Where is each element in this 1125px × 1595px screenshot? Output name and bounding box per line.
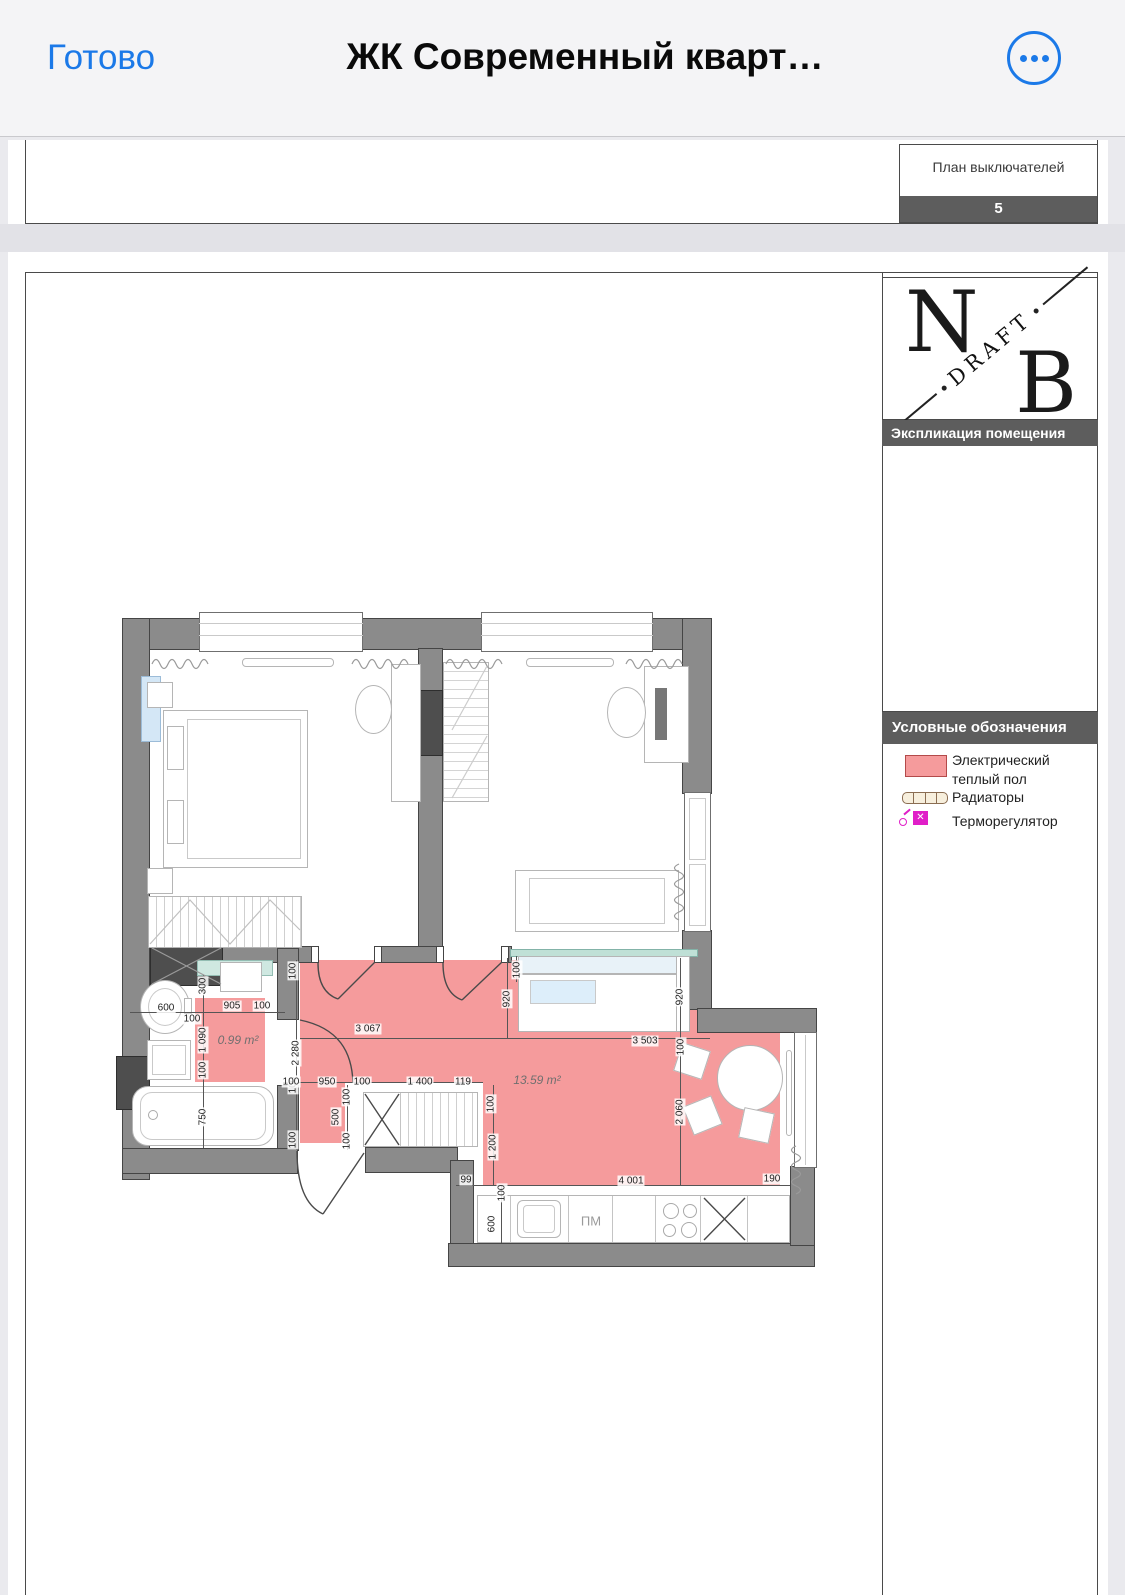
nightstand (147, 868, 173, 894)
wall-bottom-bathroom (122, 1148, 298, 1174)
dimension-label: 100 (353, 1077, 372, 1088)
logo-letter-b: B (1015, 341, 1077, 425)
dimension-label: 905 (223, 1001, 242, 1012)
dimension-label: 950 (318, 1077, 337, 1088)
explication-table-empty (882, 446, 1098, 712)
dimension-label: 1 090 (198, 1026, 209, 1053)
explication-header: Экспликация помещения (882, 420, 1098, 446)
curtain-rod (526, 658, 614, 667)
dimension-label: 100 (497, 1184, 508, 1203)
dimension-label: 100 (676, 1038, 687, 1057)
more-options-button[interactable] (1007, 31, 1061, 85)
dimension-label: 1 200 (488, 1133, 499, 1160)
chair (607, 687, 646, 738)
window-bedroom1 (199, 612, 363, 652)
dimension-label: 2 060 (675, 1098, 686, 1125)
dimension-label: 920 (675, 988, 686, 1007)
dimension-label: 300 (198, 977, 209, 996)
dimension-label: 920 (502, 990, 513, 1009)
dimension-label: 1 400 (406, 1077, 433, 1088)
logo-box: N B DRAFT (882, 277, 1098, 420)
stamp-page-number: 5 (900, 196, 1097, 222)
radiator-icon (902, 792, 948, 804)
dimension-label: 600 (487, 1215, 498, 1234)
thermoregulator-box-icon (913, 811, 928, 825)
area-label-kitchen: 13.59 m² (513, 1073, 560, 1087)
heated-floor-swatch (905, 755, 947, 777)
dimension-label: 100 (512, 961, 523, 980)
dimension-label: 99 (459, 1175, 472, 1186)
dimension-label: 2 280 (291, 1039, 302, 1066)
dimension-label: 100 (253, 1001, 272, 1012)
dining-chair (738, 1107, 775, 1144)
pillow (167, 726, 184, 770)
curtain-rod (242, 658, 334, 667)
dimension-label: 100 (288, 962, 299, 981)
dimension-label: 100 (198, 1061, 209, 1080)
dimension-label: 100 (282, 1077, 301, 1088)
dishwasher-label: ПМ (580, 1214, 602, 1229)
curtain (786, 1050, 792, 1136)
dimension-label: 500 (331, 1108, 342, 1127)
chair (355, 685, 392, 734)
stove-burner (681, 1222, 697, 1238)
area-label-bathroom: 0.99 m² (218, 1033, 259, 1047)
wardrobe-bedroom1 (148, 896, 302, 948)
dimension-label: 100 (342, 1132, 353, 1151)
bathroom-cabinet (220, 962, 262, 992)
document-title: ЖК Современный кварт… (347, 36, 824, 78)
stamp-title: План выключателей (900, 159, 1097, 175)
dining-table (717, 1045, 783, 1111)
sofa-back (518, 956, 690, 974)
stove-burner (683, 1204, 697, 1218)
pillow (167, 800, 184, 844)
wall-bottom-kitchen (448, 1243, 815, 1267)
balcony-door (684, 792, 711, 932)
window-bedroom2 (481, 612, 653, 652)
dimension-label: 4 001 (617, 1176, 644, 1187)
dimension-label: 100 (183, 1014, 202, 1025)
stove-burner (663, 1203, 679, 1219)
stamp-box: План выключателей 5 (899, 144, 1098, 223)
done-button[interactable]: Готово (47, 38, 155, 78)
legend-header: Условные обозначения (882, 712, 1098, 744)
page-gap (0, 224, 1125, 252)
dimension-label: 119 (454, 1077, 472, 1088)
pdf-page-previous[interactable]: План выключателей 5 (8, 140, 1108, 224)
monitor (655, 688, 667, 740)
dimension-label: 3 067 (354, 1024, 381, 1035)
window-kitchen (794, 1032, 817, 1168)
dimension-label: 750 (198, 1108, 209, 1127)
dimension-label: 100 (486, 1095, 497, 1114)
nightstand (147, 682, 173, 708)
dimension-label: 100 (288, 1131, 299, 1150)
stove-burner (663, 1224, 676, 1237)
desk (391, 664, 421, 802)
thermoregulator-icon (898, 812, 910, 824)
dimension-label: 3 503 (631, 1036, 658, 1047)
bathtub-faucet (148, 1110, 158, 1120)
ellipsis-icon (1020, 55, 1049, 62)
navigation-bar: Готово ЖК Современный кварт… (0, 0, 1125, 137)
dimension-label: 190 (763, 1174, 782, 1185)
wardrobe-bedroom2 (443, 662, 489, 802)
dimension-label: 100 (342, 1088, 353, 1107)
dimension-label: 600 (157, 1003, 176, 1014)
